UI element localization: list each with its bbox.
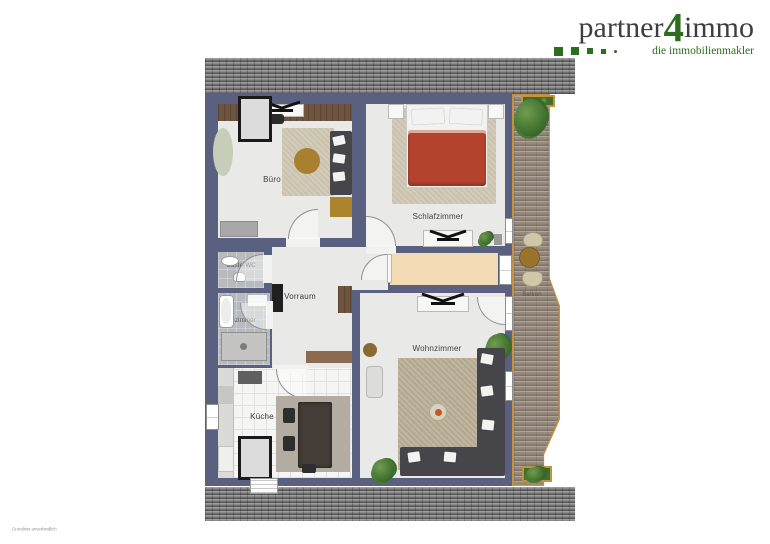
- door-threshold: [366, 245, 396, 254]
- ottoman: [330, 197, 352, 217]
- stove: [238, 371, 262, 384]
- ceiling-fan-icon: [428, 228, 468, 242]
- balcony-table: [519, 247, 540, 268]
- room-label-kueche: Küche: [238, 412, 286, 421]
- window: [505, 296, 513, 331]
- sofa-pillow: [333, 171, 346, 181]
- dining-chair: [302, 464, 316, 473]
- logo-square-icon: [571, 47, 579, 55]
- dining-table: [298, 402, 332, 468]
- plant-icon: [515, 99, 547, 137]
- refrigerator: [218, 446, 234, 472]
- window: [206, 404, 219, 430]
- balcony-border: [512, 94, 560, 486]
- plant-icon: [479, 232, 492, 245]
- shower-drain: [240, 343, 247, 350]
- door-threshold: [266, 301, 273, 329]
- balcony-door: [499, 255, 512, 285]
- nightstand: [488, 104, 504, 119]
- sofa-pillow: [480, 353, 494, 365]
- sofa-pillow: [444, 451, 457, 462]
- balcony-deck: [514, 96, 559, 485]
- hall-bench: [306, 351, 352, 363]
- wardrobe: [272, 284, 283, 312]
- hallway-strip-floor: [390, 253, 498, 285]
- room-label-schlafzimmer: Schlafzimmer: [398, 212, 478, 221]
- logo-square-icon: [601, 49, 606, 54]
- bathtub-basin: [221, 298, 231, 324]
- logo-square-icon: [554, 47, 563, 56]
- bed-pillow: [450, 108, 483, 125]
- logo-part2: immo: [684, 11, 754, 44]
- logo-part1: partner: [579, 11, 664, 44]
- logo-number-4: 4: [663, 4, 684, 50]
- window: [505, 218, 513, 244]
- sofa-pillow: [407, 451, 420, 463]
- room-label-wohnzimmer: Wohnzimmer: [397, 344, 477, 353]
- roof-strip-top: [205, 58, 575, 94]
- sofa-pillow: [332, 153, 345, 164]
- wc-sink: [221, 256, 239, 266]
- armchair: [366, 366, 383, 398]
- bed-pillow: [412, 108, 445, 125]
- roof-window: [238, 96, 272, 142]
- logo-dot-icon: [614, 50, 617, 53]
- hall-cabinet: [338, 286, 352, 313]
- nightstand: [388, 104, 404, 119]
- floor-plan-page: partner4immo die immobilienmakler: [0, 0, 770, 544]
- room-label-buero: Büro: [247, 175, 297, 184]
- ceiling-fan-icon: [420, 291, 466, 306]
- plant-icon: [526, 467, 546, 481]
- logo-wordmark: partner4immo: [554, 12, 754, 44]
- waste-bin: [494, 234, 502, 245]
- fire-bowl-flame: [435, 409, 442, 416]
- room-label-balkon: Balkon: [512, 292, 552, 299]
- sofa-pillow: [482, 419, 495, 430]
- fine-print: Grundriss unverbindlich: [12, 527, 57, 532]
- rug-accent-circle: [294, 148, 320, 174]
- bed-duvet: [408, 130, 486, 186]
- balcony-chair: [523, 232, 543, 247]
- logo-square-icon: [587, 48, 593, 54]
- side-table: [363, 343, 377, 357]
- sideboard: [220, 221, 258, 237]
- balcony-chair: [522, 271, 543, 287]
- lounge-chair: [213, 128, 233, 176]
- door-leaf: [387, 254, 392, 283]
- roof-hatch: [250, 478, 278, 494]
- logo-subline: die immobilienmakler: [554, 45, 754, 57]
- door-threshold: [263, 255, 272, 283]
- dining-chair: [283, 436, 295, 451]
- sofa-pillow: [480, 385, 493, 397]
- window: [505, 371, 513, 401]
- kitchen-sink-unit: [218, 386, 234, 404]
- roof-window: [238, 436, 272, 480]
- plant-icon: [372, 459, 395, 482]
- partner4immo-logo: partner4immo die immobilienmakler: [554, 12, 754, 57]
